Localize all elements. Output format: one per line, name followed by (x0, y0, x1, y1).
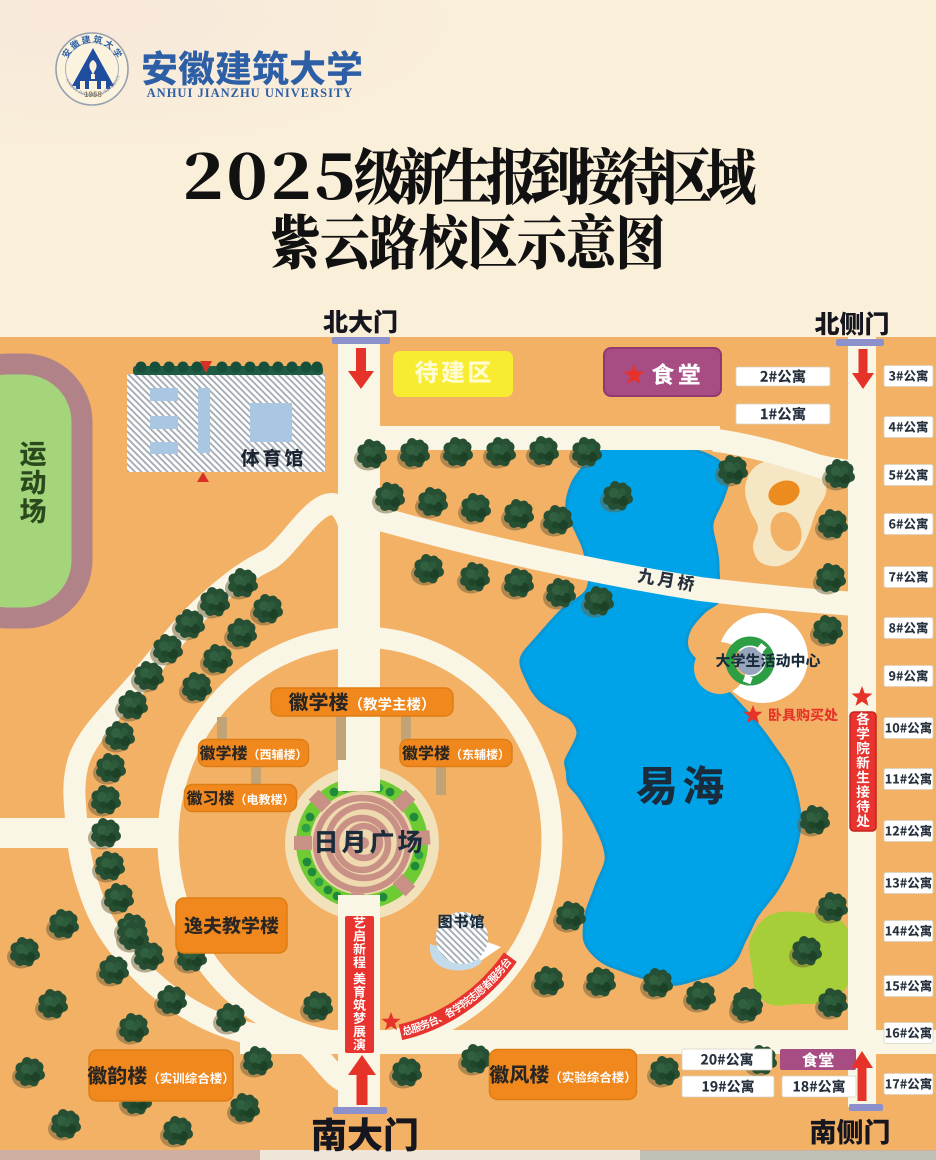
svg-text:ANHUI JIANZHU UNIVERSITY: ANHUI JIANZHU UNIVERSITY (147, 86, 354, 100)
